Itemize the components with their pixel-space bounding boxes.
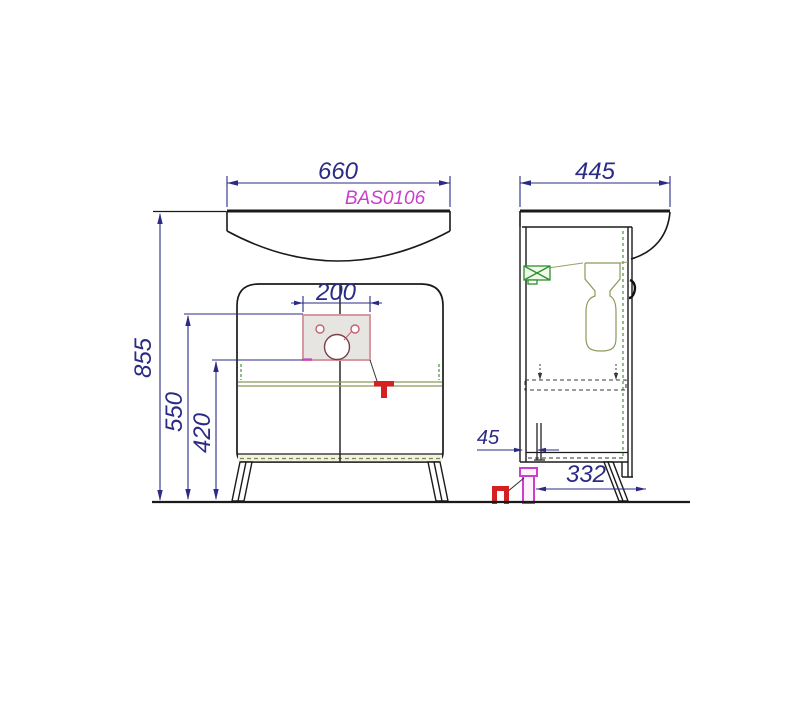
front-wall — [628, 227, 632, 477]
dim-foot-span-label: 332 — [566, 461, 606, 488]
dim-back-offset-label: 45 — [477, 427, 500, 449]
product-code-label: BAS0106 — [345, 188, 426, 209]
shelf-arrow-right — [614, 373, 618, 380]
siphon-outline — [585, 263, 620, 351]
plate-hole-right — [351, 325, 359, 333]
drain-fitting — [524, 266, 550, 284]
sink-profile — [520, 211, 670, 259]
rear-bracket — [534, 423, 545, 460]
mounting-plate — [303, 315, 370, 360]
technical-drawing: 660 BAS0106 445 200 855 550 420 45 332 — [0, 0, 800, 703]
foot-marker — [492, 478, 524, 504]
foot-leader-line — [507, 478, 524, 492]
dim-plate-width-label: 200 — [315, 279, 357, 306]
dim-overall-width-label: 660 — [318, 158, 359, 185]
sink-outline — [227, 211, 450, 261]
adjustable-foot — [520, 468, 537, 503]
dim-plate-bottom-label: 420 — [189, 412, 216, 453]
dim-overall-depth-label: 445 — [575, 158, 616, 185]
dim-plate-top-label: 550 — [161, 391, 188, 432]
shelf-arrow-left — [538, 373, 542, 380]
hidden-shelf — [525, 364, 626, 390]
back-wall — [520, 227, 526, 462]
front-view — [227, 211, 450, 501]
side-leg — [604, 462, 628, 501]
drawing-canvas: 660 BAS0106 445 200 855 550 420 45 332 — [0, 0, 800, 703]
front-legs — [232, 462, 448, 501]
plate-hole-left — [316, 325, 324, 333]
dim-overall-height-label: 855 — [130, 337, 157, 378]
